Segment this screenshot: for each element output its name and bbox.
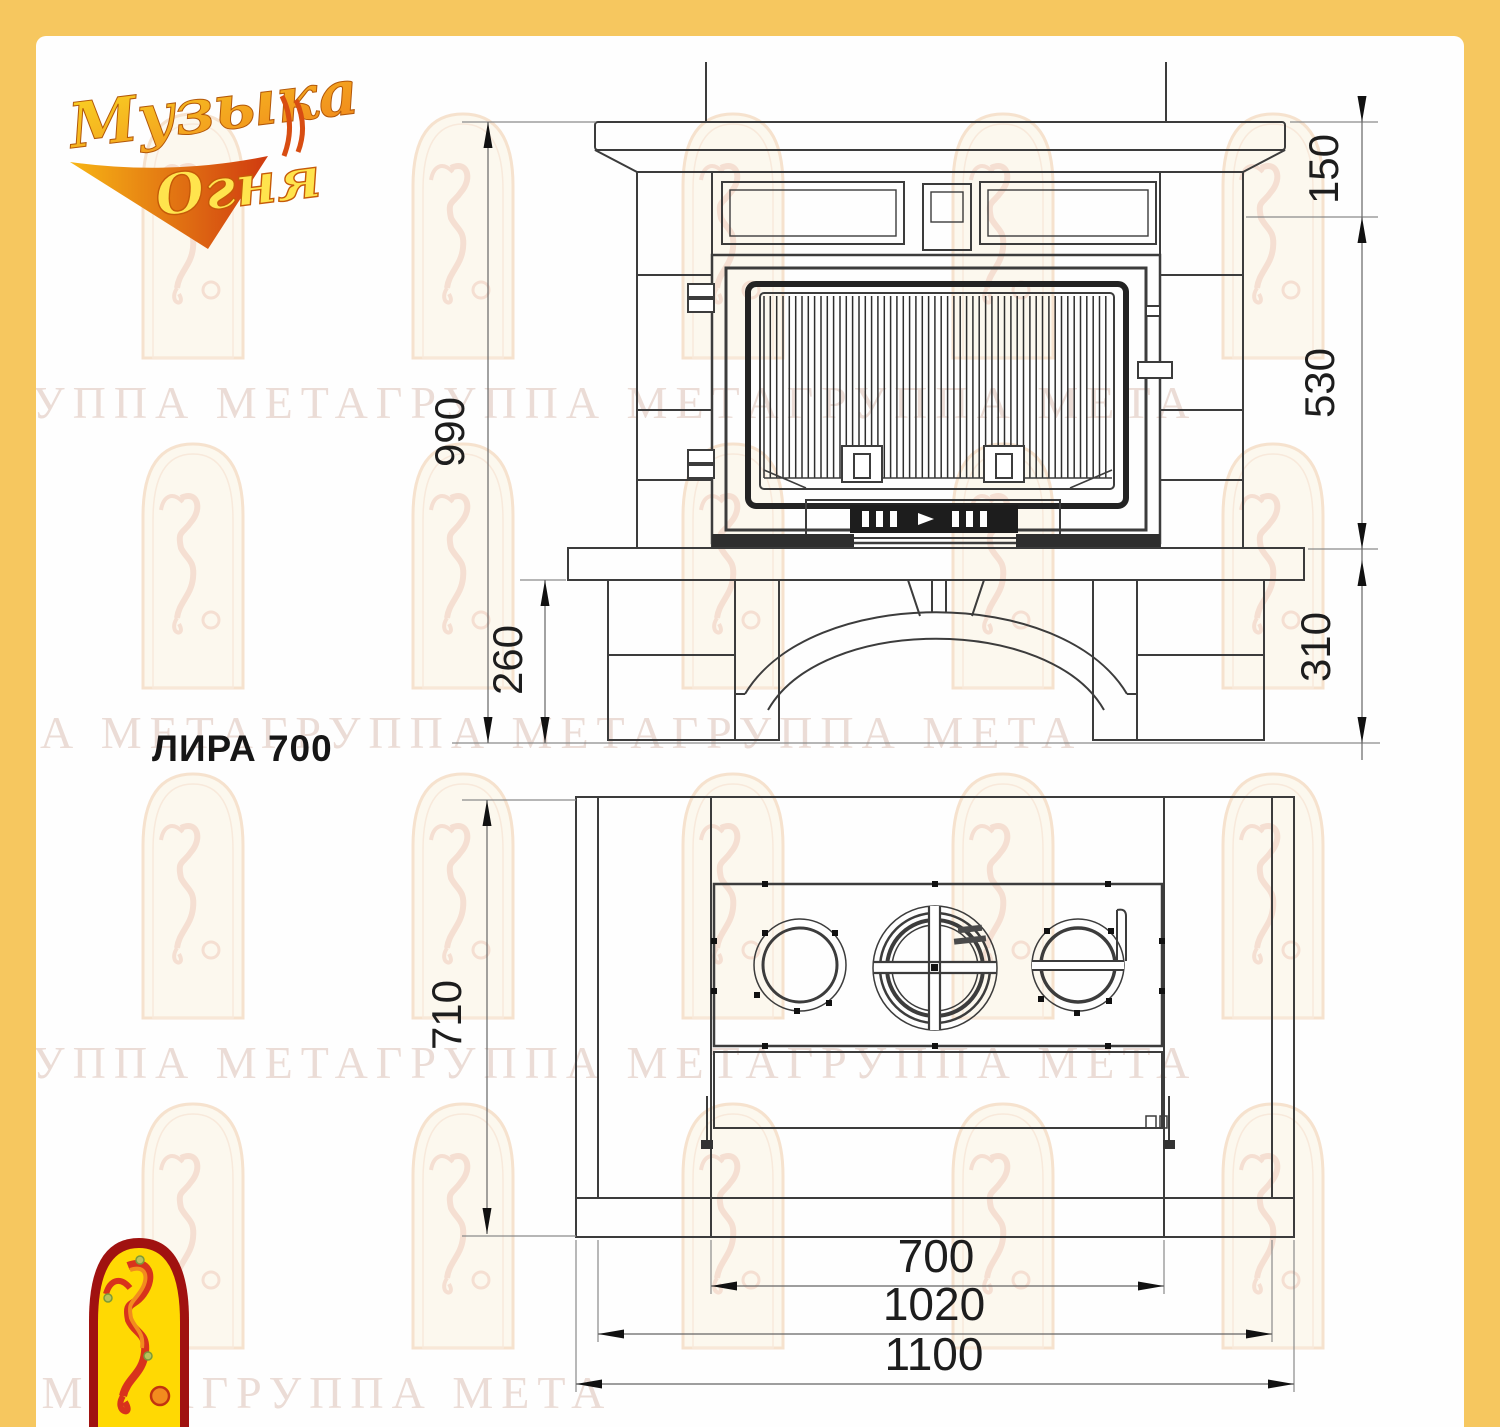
body-outline xyxy=(637,172,1243,548)
front-view xyxy=(568,62,1304,740)
dimension-arrows xyxy=(483,96,1367,1389)
frieze-panel-left-inner xyxy=(730,190,896,236)
flue-collar-left-ring xyxy=(763,928,837,1002)
dim-label-1020: 1020 xyxy=(883,1278,985,1330)
hearth-slab xyxy=(568,548,1304,580)
mantel-chamfer xyxy=(595,150,1285,172)
dim-label-310: 310 xyxy=(1292,612,1339,682)
chimney-lines xyxy=(706,62,1166,122)
base-arch-inner xyxy=(768,639,1104,710)
hinge-bottom xyxy=(688,450,714,463)
plinth-leg-right xyxy=(1093,580,1264,740)
door-foot-right-inner xyxy=(996,454,1012,478)
base-keystone xyxy=(908,580,984,616)
dim-label-1100: 1100 xyxy=(885,1328,984,1380)
dim-label-260: 260 xyxy=(484,625,531,695)
plan-hooks xyxy=(707,1096,1169,1140)
flue-crosshair xyxy=(874,906,996,1030)
door-grille xyxy=(764,296,1106,478)
plan-bolt-detail xyxy=(1146,1116,1156,1128)
grille-bottom-edge xyxy=(764,470,1112,488)
door-latch xyxy=(1146,306,1160,316)
plan-foot-left xyxy=(701,1140,713,1149)
dim-label-990: 990 xyxy=(426,397,473,467)
plan-lintel-band xyxy=(714,1052,1162,1128)
sill-right xyxy=(1016,534,1160,548)
hinge-bottom-2 xyxy=(688,465,714,478)
drawing-canvas: ГРУППА МЕТАГРУППА МЕТАГРУППА МЕТА ГРУППА… xyxy=(36,36,1464,1427)
arch-logo xyxy=(88,1236,190,1427)
dim-label-530: 530 xyxy=(1296,348,1343,418)
hinge-top-2 xyxy=(688,299,714,312)
door-handle xyxy=(1138,362,1172,378)
plan-foot-right xyxy=(1163,1140,1175,1149)
insert-door-frame xyxy=(748,284,1126,506)
frieze-panel-left xyxy=(722,182,904,244)
model-title: ЛИРА 700 xyxy=(152,728,333,770)
brand-word-1: Музыка xyxy=(63,55,362,163)
plinth-leg-left xyxy=(608,580,779,740)
frieze-center-block xyxy=(923,184,971,250)
brand-logo: Музыка Огня xyxy=(50,44,370,274)
hinge-top xyxy=(688,284,714,297)
frieze-panel-right-inner xyxy=(988,190,1148,236)
frieze-panel-right xyxy=(980,182,1156,244)
plan-view xyxy=(576,797,1294,1237)
dim-label-150: 150 xyxy=(1300,134,1347,204)
brand-word-2: Огня xyxy=(152,144,324,230)
dim-label-710: 710 xyxy=(423,980,470,1050)
door-foot-left-inner xyxy=(854,454,870,478)
spec-sheet-page: ГРУППА МЕТАГРУППА МЕТАГРУППА МЕТА ГРУППА… xyxy=(0,0,1500,1427)
plinth-leg-lines xyxy=(608,580,1264,740)
frieze-center-inner xyxy=(931,192,963,222)
dim-label-700: 700 xyxy=(898,1230,975,1282)
mantel-shelf xyxy=(595,122,1285,150)
sill-left xyxy=(712,534,854,548)
base-arch-outer xyxy=(745,612,1127,694)
